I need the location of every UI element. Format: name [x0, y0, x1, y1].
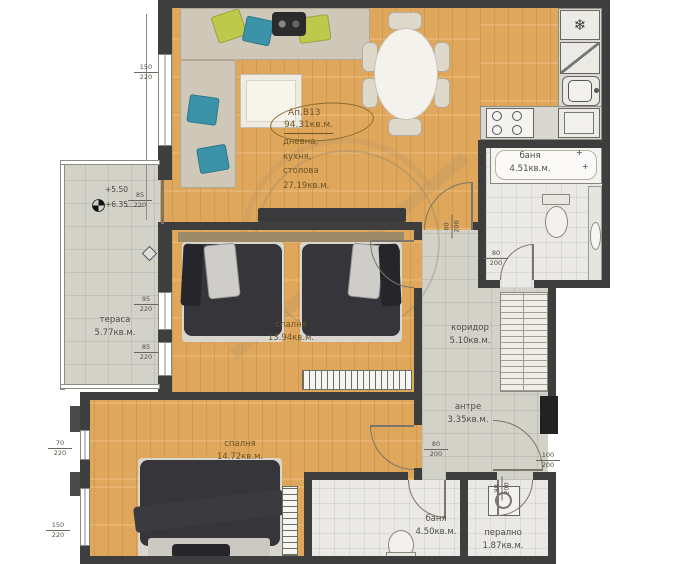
living-room-name-1: дневна, [283, 135, 329, 150]
wall-bedroom2-left-a [80, 392, 90, 430]
bedroom2-name: спалня [205, 438, 275, 451]
wall-bedroom1-left-bottom [158, 376, 172, 400]
dim-value: 80 [444, 222, 451, 230]
living-room-name-2: кухня, [283, 150, 329, 165]
bedroom1-radiator [302, 370, 412, 390]
bedroom2-radiator [282, 486, 298, 556]
dim-bedroom2-window-2: 150220 [46, 522, 70, 539]
dining-table [374, 28, 438, 120]
kitchen-sink-bowl [568, 80, 592, 102]
laundry-name: перално [475, 527, 531, 540]
living-room-area: 27.19кв.м. [283, 179, 329, 194]
dim-value: 80 [432, 441, 440, 448]
corridor-closet [500, 292, 548, 392]
wall-bath2-top-a [304, 472, 408, 480]
bedroom2-area: 14.72кв.м. [205, 451, 275, 464]
wall-antre-bottom-b [533, 472, 556, 480]
kitchen-cabinet [560, 42, 600, 74]
bath2-label: баня 4.50кв.м. [408, 513, 464, 538]
wall-bedroom2-antre-b [414, 468, 422, 480]
dim-value: 220 [52, 532, 64, 539]
dim-terrace-window-1: 95220 [134, 296, 158, 313]
corridor-area: 5.10кв.м. [440, 335, 500, 348]
wall-stub-1 [70, 406, 80, 432]
bedroom2-label: спалня 14.72кв.м. [205, 438, 275, 463]
wall-bedroom1-corridor-a [414, 222, 422, 240]
bath1-toilet-bowl [545, 206, 568, 238]
dim-value: 100 [542, 452, 554, 459]
dim-value: 150 [52, 522, 64, 529]
bath1-name: баня [500, 150, 560, 163]
dim-bedroom1-door: 80200 [444, 215, 461, 239]
fridge-snowflake-icon: ❄ [574, 16, 587, 34]
dim-value: 220 [134, 202, 146, 209]
elevation-labels: +5.50 +6.35 [105, 182, 128, 212]
elevation-lower: +6.35 [105, 197, 128, 212]
bedroom1-door-leaf [370, 240, 414, 242]
wall-bedroom2-left-c [80, 546, 90, 564]
dim-value: 85 [142, 344, 150, 351]
wall-bath1-bottom-b [534, 280, 610, 288]
dim-value: 220 [54, 450, 66, 457]
corridor-name: коридор [440, 322, 500, 335]
bedroom1-name: спалня [256, 319, 326, 332]
terrace-door-leaf [161, 180, 164, 224]
dimension-line-left-top [146, 14, 147, 220]
dim-value: 220 [140, 74, 152, 81]
dim-value: 220 [140, 306, 152, 313]
bath1-area: 4.51кв.м. [500, 163, 560, 176]
bed1-pillow-dark-left [180, 244, 203, 307]
benchmark-icon [92, 199, 105, 212]
dim-value: 85 [136, 192, 144, 199]
dim-value: 200 [454, 220, 461, 232]
wall-laundry-right [548, 472, 556, 564]
living-door-leaf [471, 182, 473, 230]
dim-terrace-window-2: 85220 [134, 344, 158, 361]
wall-living-left-b [158, 146, 172, 180]
bath2-area: 4.50кв.м. [408, 526, 464, 539]
wall-bath2-bedroom2 [304, 480, 312, 564]
bath1-door-leaf [532, 244, 534, 280]
dim-value: 80 [492, 250, 500, 257]
bedroom1-area: 13.94кв.м. [256, 332, 326, 345]
faucet-icon: + [582, 162, 589, 171]
bath1-sink-basin [590, 222, 601, 250]
elevation-upper: +5.50 [105, 182, 128, 197]
bath1-label: баня 4.51кв.м. [500, 150, 560, 175]
stove-burner-4 [512, 125, 522, 135]
tv-console [258, 208, 406, 222]
bed1-pillow-light-left [203, 242, 240, 299]
dining-chair-bottom [388, 118, 422, 136]
terrace-railing-bottom [60, 384, 160, 389]
wall-bath1-bottom-a [478, 280, 500, 288]
antre-name: антре [438, 401, 498, 414]
antre-area: 3.35кв.м. [438, 414, 498, 427]
dim-entry-door: 100200 [536, 452, 560, 469]
dim-value: 200 [430, 451, 442, 458]
entry-door-leaf [493, 469, 543, 471]
wall-bath1-top [478, 140, 610, 148]
dim-bath1-door: 80200 [484, 250, 508, 267]
terrace-name: тераса [85, 314, 145, 327]
living-window [158, 54, 172, 146]
dim-terrace-door: 85220 [128, 192, 152, 209]
bath1-toilet-tank [542, 194, 570, 205]
apartment-code: Ап.В13 [288, 107, 321, 120]
bedroom1-label: спалня 13.94кв.м. [256, 319, 326, 344]
bedroom2-window-2 [80, 488, 90, 546]
dim-value: 70 [56, 440, 64, 447]
faucet-icon: + [576, 148, 583, 157]
bedroom2-window-1 [80, 430, 90, 460]
wall-bedroom1-left-mid [158, 330, 172, 342]
terrace-railing-left [60, 160, 65, 390]
terrace-railing-top [60, 160, 160, 165]
terrace-label: тераса 5.77кв.м. [85, 314, 145, 339]
wall-corridor-top-jamb [472, 222, 480, 230]
bedroom1-terrace-window-1 [158, 292, 172, 330]
bedroom2-door-leaf [370, 425, 414, 427]
dim-value: 90 [494, 484, 501, 492]
wall-bedroom1-bedroom2 [80, 392, 422, 400]
stove-burner-2 [512, 111, 522, 121]
dim-value: 200 [504, 482, 511, 494]
wall-stub-2 [70, 472, 80, 496]
antre-label: антре 3.35кв.м. [438, 401, 498, 426]
wall-corridor-right [548, 288, 556, 398]
dim-bath2-door: 90200 [494, 477, 511, 501]
floor-plan: ❄ + + [0, 0, 678, 564]
sofa-pillow-teal-2 [186, 94, 220, 126]
wall-living-left-c [158, 224, 172, 292]
sofa-pillow-teal-3 [196, 144, 230, 175]
dim-bedroom2-door: 80200 [424, 441, 448, 458]
laundry-label: перално 1.87кв.м. [475, 527, 531, 552]
dim-bedroom2-window-1: 70220 [48, 440, 72, 457]
wall-bottom [80, 556, 556, 564]
sofa-pillow-teal-1 [242, 15, 275, 46]
wall-living-bedroom1 [158, 222, 414, 230]
fridge: ❄ [560, 10, 600, 40]
terrace-area: 5.77кв.м. [85, 327, 145, 340]
stove-burner-1 [492, 111, 502, 121]
apartment-area: 94.31кв.м. [284, 119, 333, 134]
dim-value: 95 [142, 296, 150, 303]
living-room-name-3: столова [283, 164, 329, 179]
kitchen-faucet [594, 88, 599, 93]
wall-bedroom2-left-b [80, 460, 90, 488]
bath2-name: баня [408, 513, 464, 526]
dim-value: 200 [490, 260, 502, 267]
dim-value: 150 [140, 64, 152, 71]
dim-value: 220 [140, 354, 152, 361]
sofa-tray [272, 12, 306, 36]
entry-column [540, 396, 558, 434]
oven-door [564, 112, 594, 134]
laundry-area: 1.87кв.м. [475, 540, 531, 553]
corridor-label: коридор 5.10кв.м. [440, 322, 500, 347]
wall-top [158, 0, 610, 8]
bedroom1-terrace-window-2 [158, 342, 172, 376]
living-room-label: дневна, кухня, столова 27.19кв.м. [283, 135, 329, 193]
wall-living-left-a [158, 8, 172, 54]
wall-bath2-top-b [446, 472, 468, 480]
wall-bedroom1-corridor-b [414, 288, 422, 395]
dim-living-window: 150220 [134, 64, 158, 81]
dim-value: 200 [542, 462, 554, 469]
stove-burner-3 [492, 125, 502, 135]
